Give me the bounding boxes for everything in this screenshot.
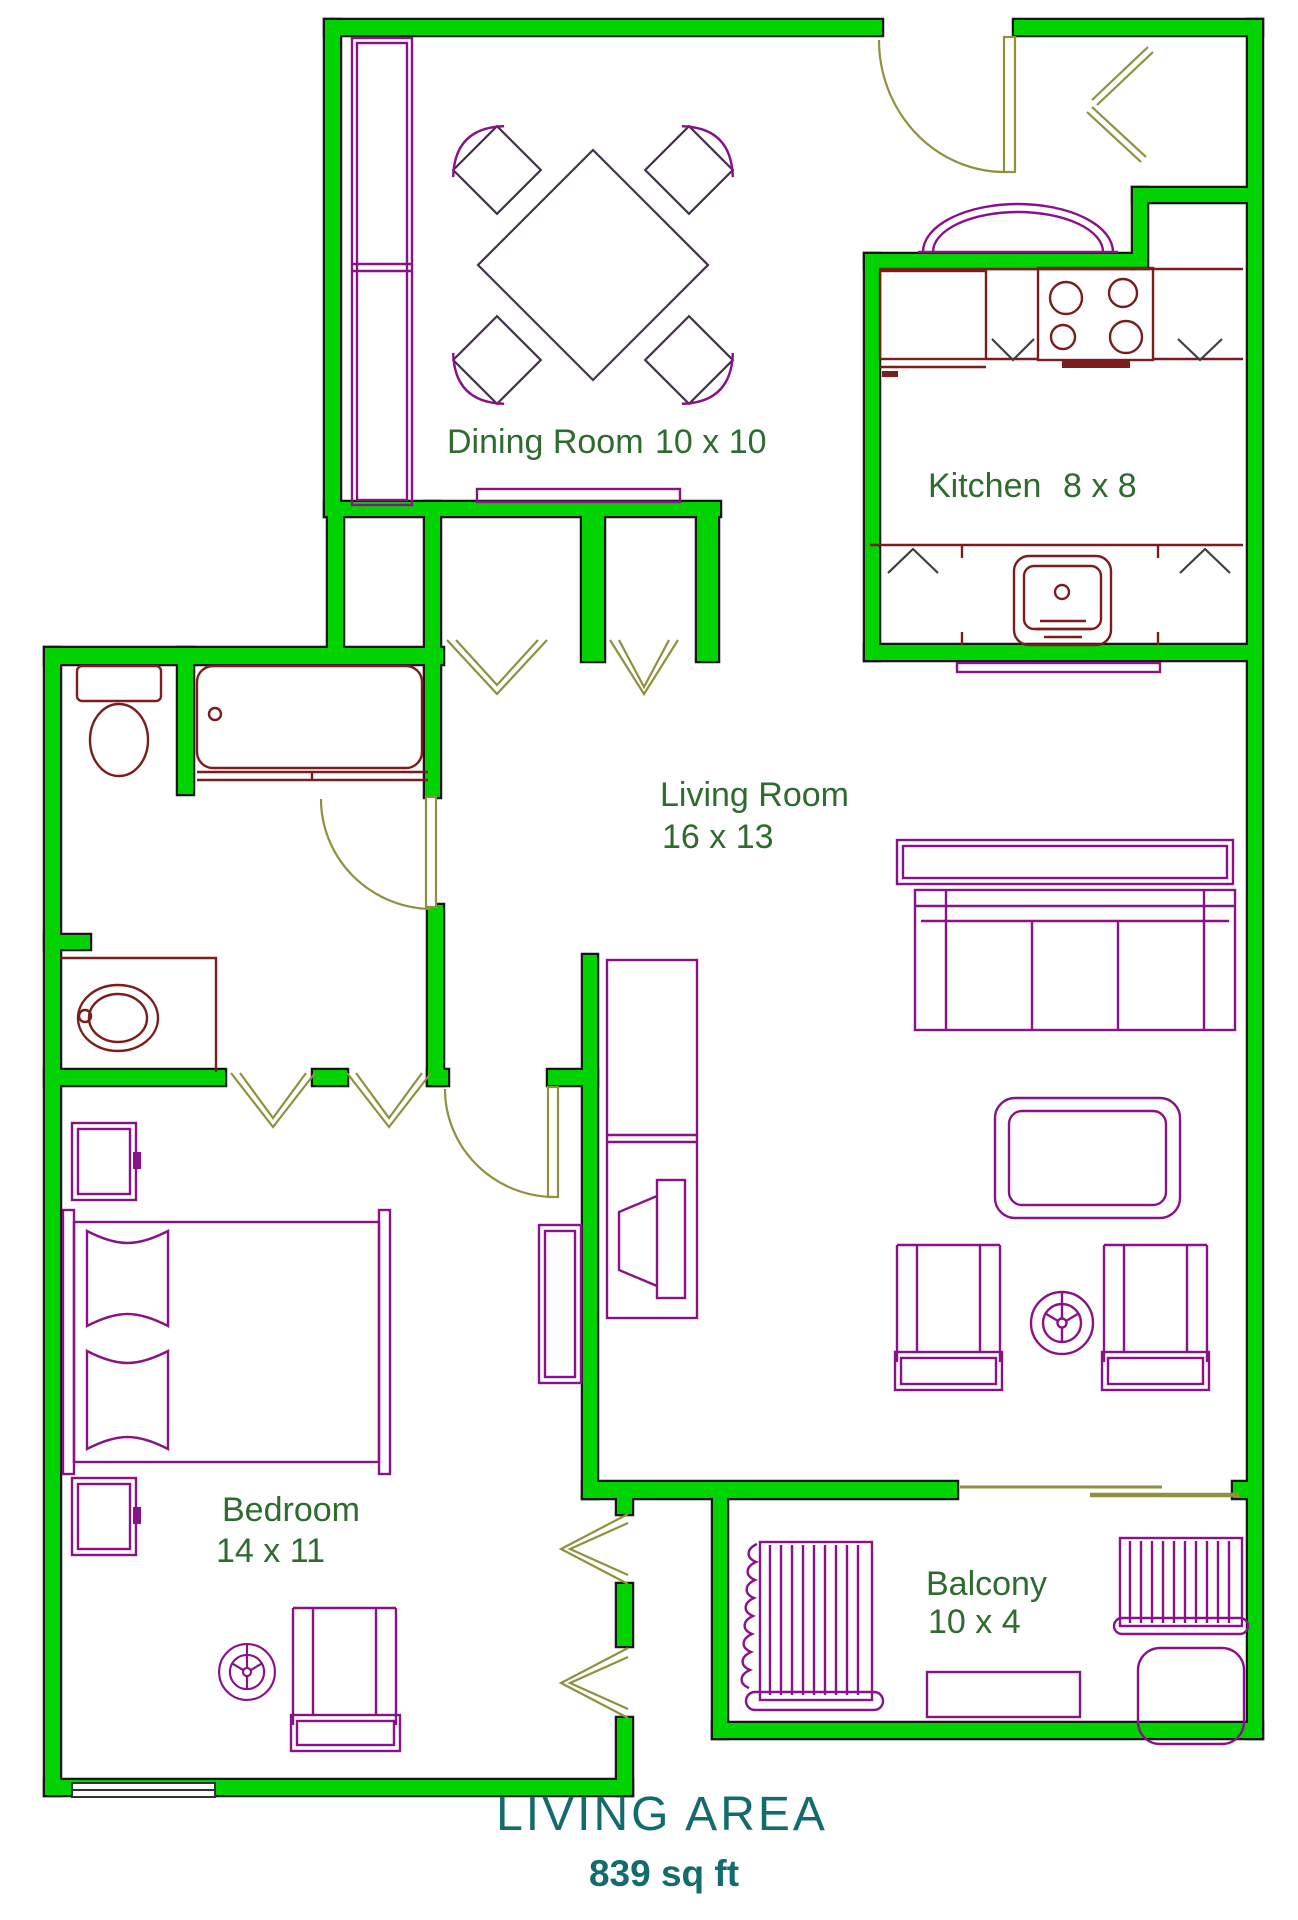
floor-plan: Dining Room 10 x 10 Kitchen 8 x 8 Living…	[0, 0, 1298, 1920]
dining-room-label: Dining Room	[447, 423, 644, 461]
bedroom-label: Bedroom	[222, 1491, 360, 1529]
kitchen-dims: 8 x 8	[1063, 467, 1137, 505]
plan-area: 839 sq ft	[589, 1853, 739, 1894]
living-room-label: Living Room	[660, 776, 849, 814]
bedroom-dims: 14 x 11	[216, 1532, 325, 1570]
window	[72, 1783, 215, 1797]
floor-plan-svg: Dining Room 10 x 10 Kitchen 8 x 8 Living…	[0, 0, 1298, 1920]
kitchen-label: Kitchen	[928, 467, 1041, 505]
dining-room-dims: 10 x 10	[655, 423, 767, 461]
living-room-dims: 16 x 13	[662, 818, 774, 856]
bathroom-door-leaf	[426, 797, 436, 907]
balcony-label: Balcony	[926, 1565, 1047, 1603]
bedroom-door-leaf	[548, 1087, 558, 1197]
entry-door-leaf	[1004, 37, 1015, 172]
plan-title: LIVING AREA	[496, 1788, 828, 1841]
balcony-dims: 10 x 4	[928, 1603, 1021, 1641]
